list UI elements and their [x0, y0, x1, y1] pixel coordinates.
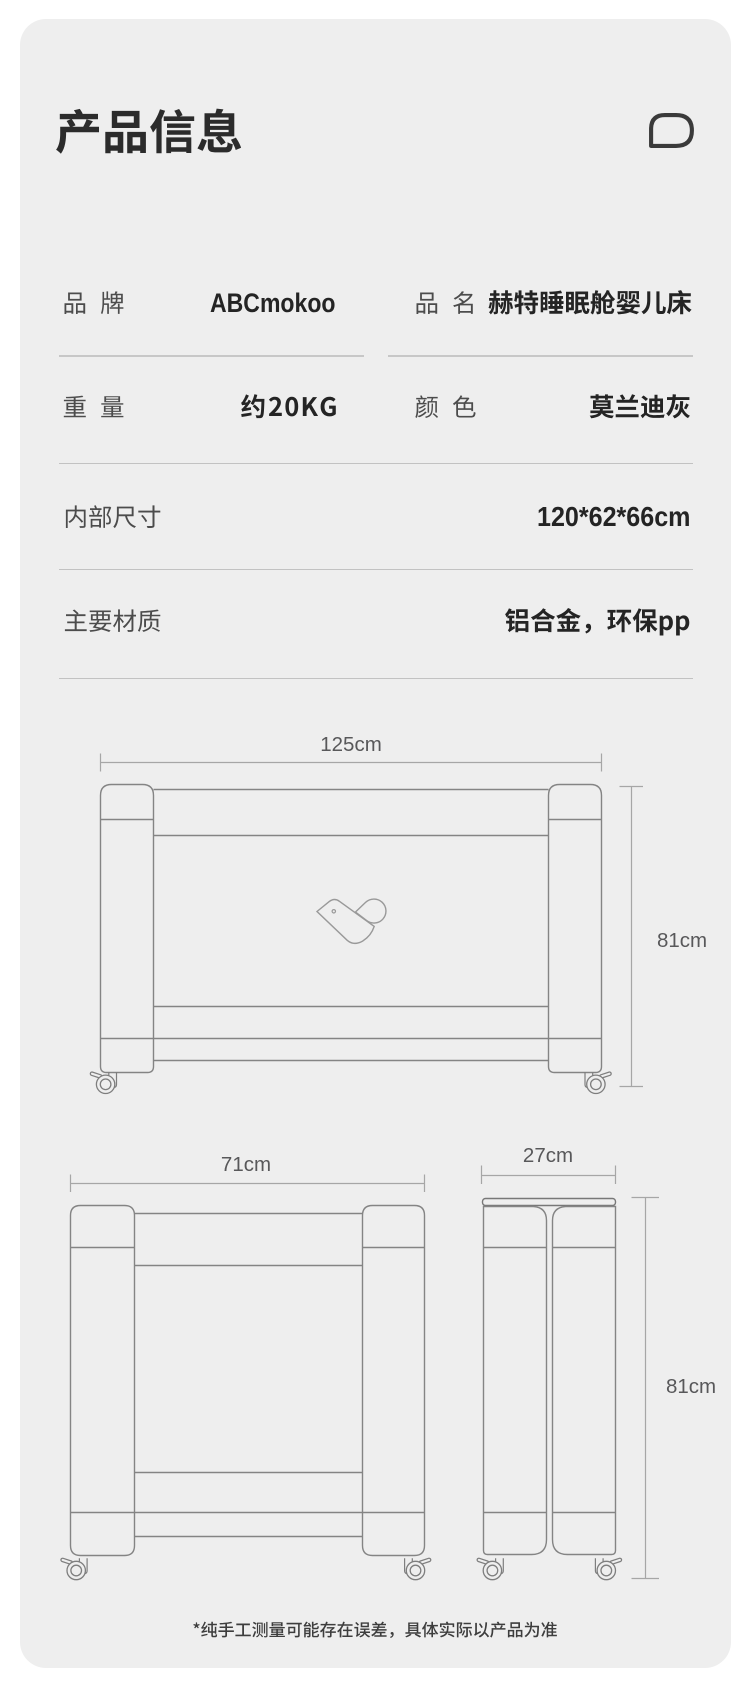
svg-text:71cm: 71cm — [221, 1153, 271, 1176]
svg-text:27cm: 27cm — [523, 1144, 573, 1167]
svg-text:120*62*66cm: 120*62*66cm — [537, 501, 691, 532]
svg-text:81cm: 81cm — [657, 929, 707, 952]
svg-text:125cm: 125cm — [320, 733, 382, 756]
svg-text:81cm: 81cm — [666, 1375, 716, 1398]
svg-text:ABCmokoo: ABCmokoo — [210, 288, 336, 318]
